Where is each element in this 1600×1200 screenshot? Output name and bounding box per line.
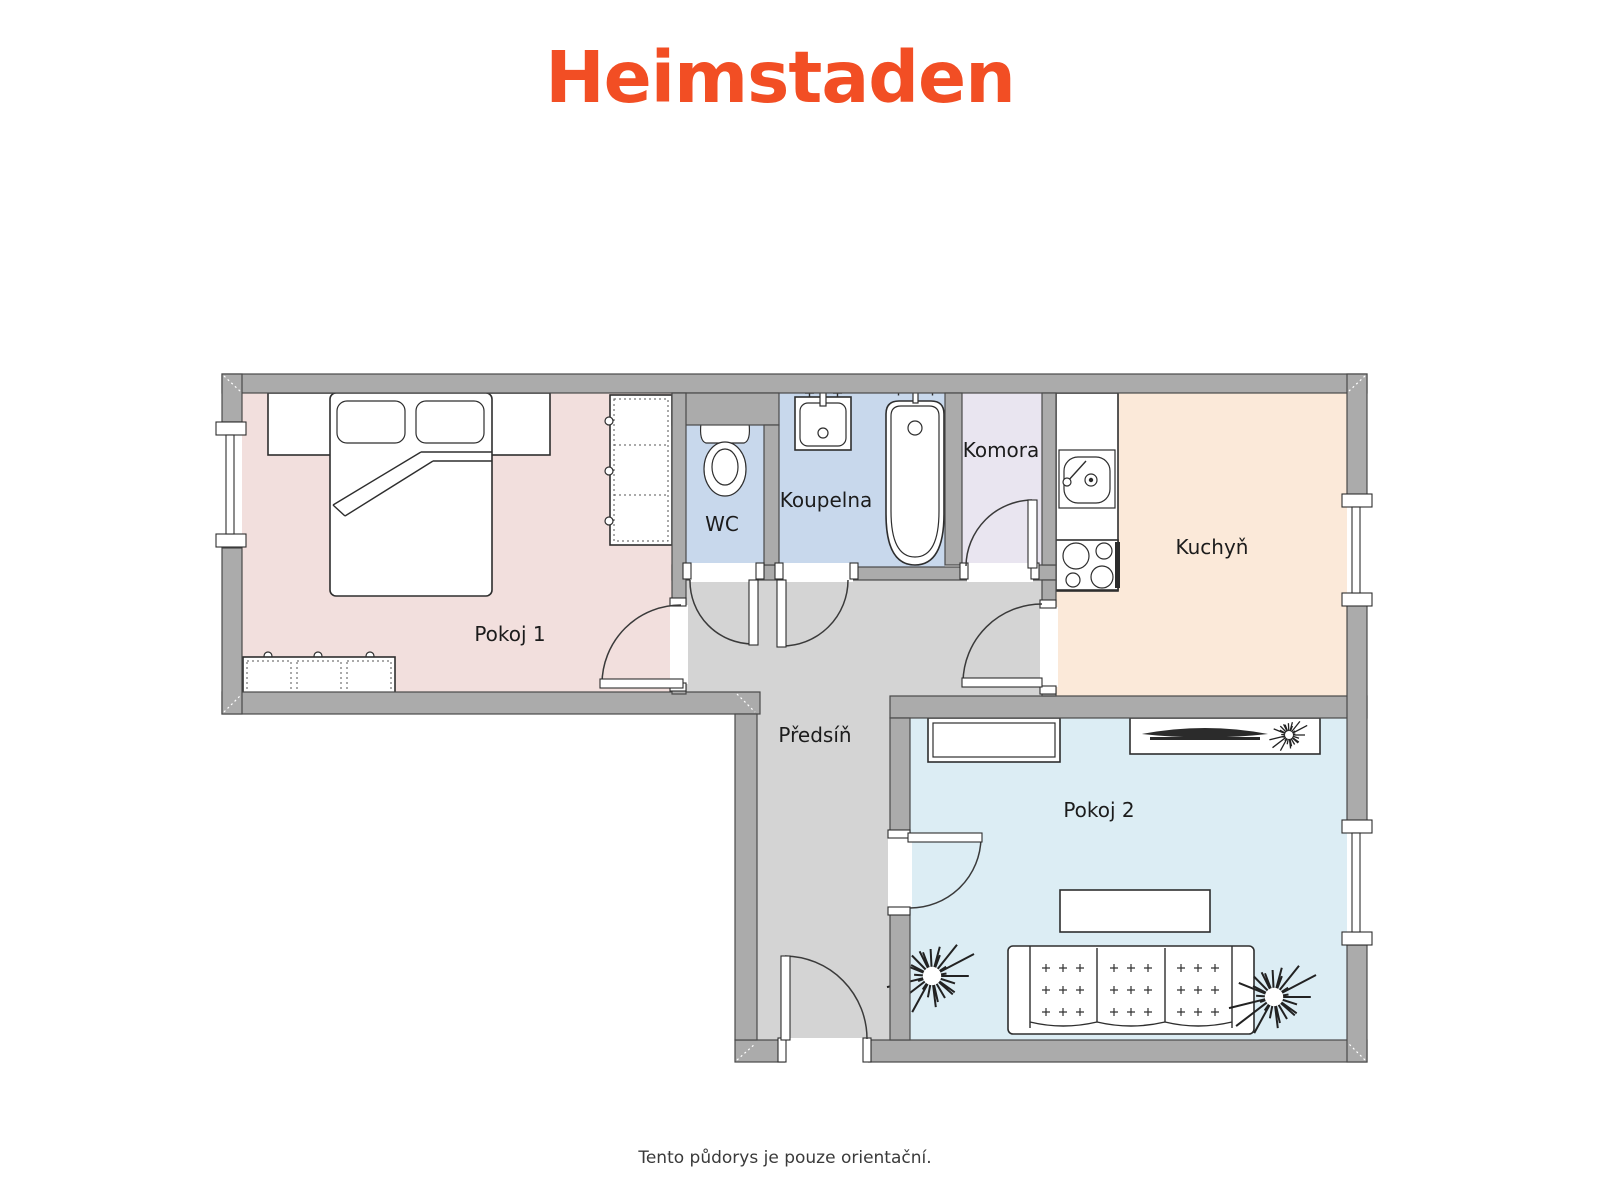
door-openings-part [888, 837, 912, 908]
door-openings-part [775, 563, 783, 579]
door-openings-part [888, 830, 910, 838]
kitchen-drain-dot [1089, 478, 1093, 482]
door-kuchyn-part [962, 678, 1042, 687]
walls-part [222, 374, 242, 422]
window-pokoj-1 [216, 422, 246, 547]
door-openings-part [967, 563, 1033, 582]
stove-edge [1115, 542, 1120, 588]
room-label-wc: WC [705, 512, 739, 536]
walls-part [890, 718, 910, 837]
page: Heimstaden [0, 0, 1600, 1200]
sink-drain [818, 428, 828, 438]
wardrobe [610, 395, 672, 545]
walls-part [222, 548, 242, 714]
walls-part [868, 1040, 1367, 1062]
floorplan: Pokoj 1 WC Koupelna Komora Kuchyň Předsí… [0, 0, 1600, 1200]
door-komora-part [1028, 500, 1037, 568]
door-openings-part [778, 1038, 786, 1062]
window-pokoj-2-part [1352, 833, 1360, 932]
door-pokoj-1-part [600, 679, 683, 688]
door-openings-part [888, 907, 910, 915]
burner [1096, 543, 1112, 559]
disclaimer-note: Tento půdorys je pouze orientační. [0, 1148, 1570, 1168]
door-openings-part [690, 563, 758, 582]
walls-part [890, 908, 910, 1040]
furniture-kuchyn [1056, 393, 1120, 591]
room-label-koupelna: Koupelna [780, 488, 873, 512]
walls-part [890, 696, 1367, 718]
tub-drain [908, 421, 922, 435]
walls-part [735, 714, 757, 1040]
door-openings-part [1040, 607, 1058, 687]
kitchen-faucet-base [1063, 478, 1071, 486]
walls-part [222, 374, 1367, 393]
toilet-bowl-inner [712, 449, 738, 485]
door-openings-part [683, 563, 691, 579]
window-pokoj-1-part [216, 534, 246, 547]
window-pokoj-2-part [1342, 932, 1372, 945]
window-kuchyn-part [1352, 507, 1360, 593]
plant-icon-center [1285, 731, 1293, 739]
door-openings-part [785, 1038, 868, 1064]
door-openings-part [756, 563, 764, 579]
walls-part [1347, 374, 1367, 495]
room-label-predsin: Předsíň [778, 723, 851, 747]
door-entrance-part [781, 956, 790, 1040]
coffee-table [1060, 890, 1210, 932]
door-wc-part [749, 580, 758, 645]
wardrobe-knob [605, 417, 613, 425]
window-pokoj-1-part [226, 435, 234, 534]
plant-icon-center [1265, 988, 1283, 1006]
pillow [416, 401, 484, 443]
furniture-wc [701, 423, 750, 496]
walls-part [945, 393, 962, 565]
room-label-pokoj-1: Pokoj 1 [474, 622, 545, 646]
toilet-tank [701, 423, 750, 443]
walls-part [1347, 605, 1367, 822]
door-openings-part [1040, 600, 1056, 608]
burner [1091, 566, 1113, 588]
bathroom-sink-basin [800, 403, 846, 446]
walls-part [764, 425, 779, 565]
window-kuchyn-part [1342, 593, 1372, 606]
tv-base [1150, 737, 1260, 740]
room-label-pokoj-2: Pokoj 2 [1063, 798, 1134, 822]
door-openings-part [782, 563, 853, 582]
door-openings-part [670, 605, 688, 684]
plant-icon-center [923, 967, 941, 985]
wardrobe-knob [605, 517, 613, 525]
window-pokoj-1-part [216, 422, 246, 435]
walls-part [853, 567, 967, 580]
window-pokoj-2-part [1342, 820, 1372, 833]
room-label-komora: Komora [963, 438, 1040, 462]
window-kuchyn-part [1342, 494, 1372, 507]
walls-part [1042, 393, 1056, 565]
door-koupelna-part [777, 580, 786, 647]
walls-part [222, 692, 760, 714]
door-pokoj-2-part [908, 833, 982, 842]
door-openings-part [960, 563, 968, 579]
door-openings-part [863, 1038, 871, 1062]
burner [1066, 573, 1080, 587]
pillow [337, 401, 405, 443]
room-label-kuchyn: Kuchyň [1176, 535, 1249, 559]
burner [1063, 543, 1089, 569]
wardrobe-knob [605, 467, 613, 475]
door-openings-part [850, 563, 858, 579]
sideboard-inner [933, 723, 1055, 757]
walls-part [672, 393, 779, 425]
